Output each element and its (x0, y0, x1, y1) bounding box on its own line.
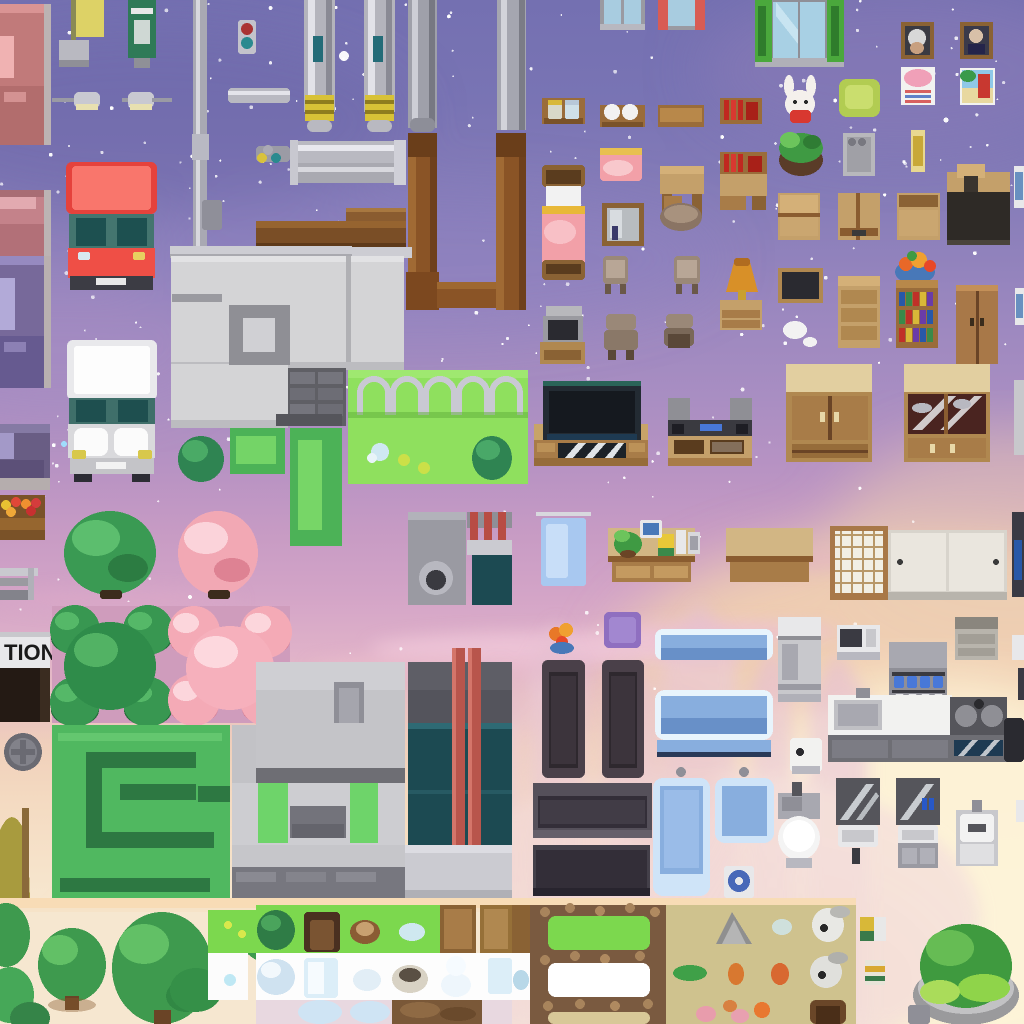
svg-text:TION: TION (4, 640, 57, 665)
